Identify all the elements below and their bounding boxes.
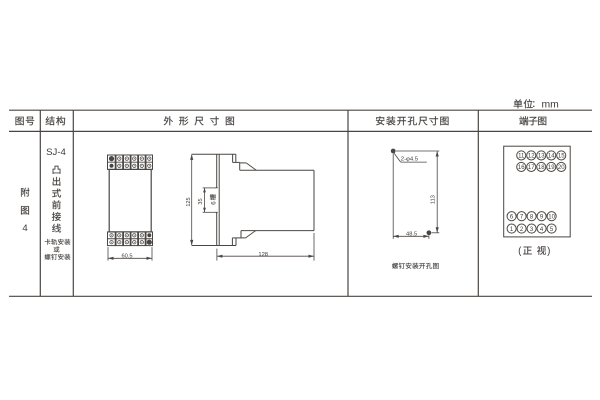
svg-text:35: 35 bbox=[198, 198, 204, 204]
svg-text:13: 13 bbox=[538, 154, 545, 160]
svg-text:14: 14 bbox=[548, 154, 555, 160]
svg-text:3: 3 bbox=[530, 227, 534, 233]
svg-text:): ) bbox=[547, 246, 550, 257]
svg-text:7: 7 bbox=[520, 214, 524, 220]
svg-text:SJ-4: SJ-4 bbox=[46, 147, 66, 158]
svg-text:4: 4 bbox=[22, 223, 28, 234]
svg-text:125: 125 bbox=[186, 197, 192, 206]
svg-text:1: 1 bbox=[510, 227, 514, 233]
svg-text:4: 4 bbox=[540, 227, 544, 233]
svg-text:8: 8 bbox=[530, 214, 534, 220]
svg-text:(: ( bbox=[518, 246, 522, 257]
svg-text:12: 12 bbox=[528, 154, 535, 160]
svg-text:：: ： bbox=[532, 99, 541, 109]
svg-text:mm: mm bbox=[542, 100, 559, 111]
svg-text:6: 6 bbox=[510, 214, 514, 220]
svg-text:19: 19 bbox=[548, 165, 555, 171]
svg-text:2: 2 bbox=[520, 227, 524, 233]
svg-text:113: 113 bbox=[430, 195, 436, 204]
svg-text:16: 16 bbox=[518, 165, 525, 171]
svg-text:48.5: 48.5 bbox=[406, 231, 417, 237]
svg-text:6: 6 bbox=[211, 201, 217, 205]
svg-text:17: 17 bbox=[528, 165, 535, 171]
svg-text:20: 20 bbox=[558, 165, 565, 171]
svg-text:15: 15 bbox=[558, 154, 565, 160]
svg-text:2-φ4.5: 2-φ4.5 bbox=[401, 157, 419, 163]
svg-text:5: 5 bbox=[550, 227, 554, 233]
svg-text:128: 128 bbox=[258, 252, 268, 258]
svg-text:10: 10 bbox=[548, 214, 555, 220]
svg-text:11: 11 bbox=[518, 154, 525, 160]
svg-text:18: 18 bbox=[538, 165, 545, 171]
svg-text:9: 9 bbox=[540, 214, 544, 220]
svg-text:60.5: 60.5 bbox=[121, 253, 132, 259]
